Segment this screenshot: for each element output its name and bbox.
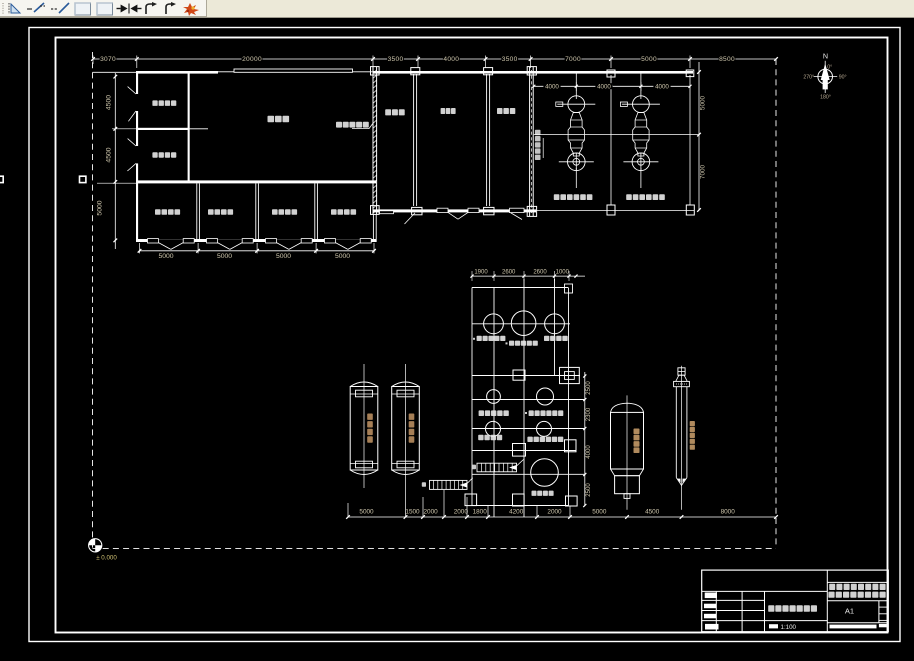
svg-text:A1: A1 xyxy=(845,607,854,616)
svg-text:20000: 20000 xyxy=(242,56,262,63)
svg-text:5000: 5000 xyxy=(592,508,607,515)
svg-text:4000: 4000 xyxy=(597,84,611,91)
svg-text:5000: 5000 xyxy=(700,95,707,110)
svg-text:8000: 8000 xyxy=(721,508,736,515)
svg-text:4500: 4500 xyxy=(106,147,113,162)
svg-text:1000: 1000 xyxy=(556,269,570,275)
svg-text:180°: 180° xyxy=(820,95,831,101)
svg-text:2600: 2600 xyxy=(502,269,516,275)
svg-text:3500: 3500 xyxy=(388,56,404,63)
svg-text:1900: 1900 xyxy=(474,269,488,275)
svg-text:4000: 4000 xyxy=(545,84,559,91)
svg-text:7000: 7000 xyxy=(565,56,581,63)
svg-text:5000: 5000 xyxy=(359,508,374,515)
svg-text:5000: 5000 xyxy=(158,253,173,260)
svg-text:0°: 0° xyxy=(827,64,832,70)
svg-text:2000: 2000 xyxy=(547,508,562,515)
svg-text:5000: 5000 xyxy=(217,253,232,260)
svg-text:4000: 4000 xyxy=(443,56,459,63)
svg-text:2500: 2500 xyxy=(586,381,592,395)
svg-text:4000: 4000 xyxy=(655,84,669,91)
svg-text:4500: 4500 xyxy=(645,508,660,515)
svg-text:1500: 1500 xyxy=(405,508,420,515)
svg-text:5000: 5000 xyxy=(276,253,291,260)
svg-text:± 0.000: ± 0.000 xyxy=(96,555,117,562)
svg-text:2300: 2300 xyxy=(586,407,592,421)
svg-text:N: N xyxy=(823,52,828,61)
svg-text:1800: 1800 xyxy=(473,508,488,515)
svg-text:2500: 2500 xyxy=(586,483,592,497)
svg-text:270°: 270° xyxy=(803,75,814,81)
svg-text:3070: 3070 xyxy=(100,56,116,63)
svg-text:8500: 8500 xyxy=(719,56,735,63)
svg-text:4000: 4000 xyxy=(586,445,592,459)
svg-text:1:100: 1:100 xyxy=(781,624,797,631)
svg-text:5000: 5000 xyxy=(335,253,350,260)
svg-text:2000: 2000 xyxy=(454,508,469,515)
svg-text:5000: 5000 xyxy=(641,56,657,63)
svg-text:4500: 4500 xyxy=(106,95,113,110)
svg-text:3500: 3500 xyxy=(502,56,518,63)
svg-text:4200: 4200 xyxy=(509,508,524,515)
svg-text:7000: 7000 xyxy=(700,164,707,179)
svg-text:90°: 90° xyxy=(839,75,847,81)
svg-text:5000: 5000 xyxy=(97,200,104,215)
svg-text:2600: 2600 xyxy=(533,269,547,275)
svg-text:2000: 2000 xyxy=(423,508,438,515)
